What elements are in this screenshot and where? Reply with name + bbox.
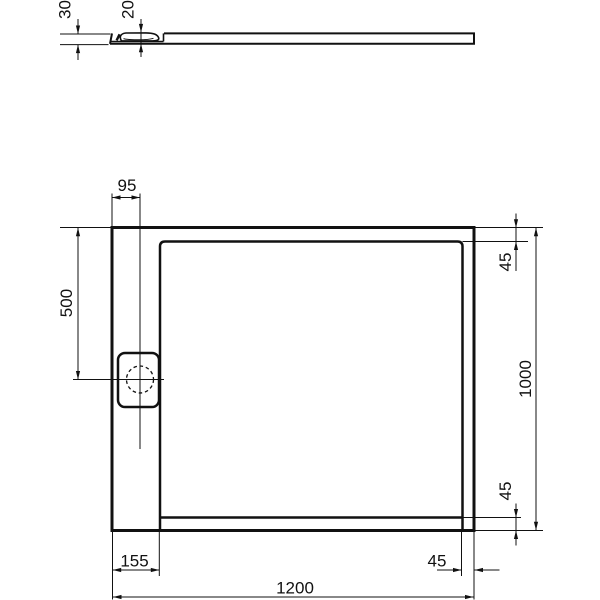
dim-label-depth: 1000	[516, 360, 535, 398]
arrow-up-icon	[534, 228, 538, 237]
plan-inner-floor	[160, 242, 463, 531]
arrow-right-icon	[453, 568, 462, 572]
arrow-down-icon	[139, 24, 143, 33]
dim-bottom-edge-band: 45	[463, 482, 522, 546]
arrow-up-icon	[76, 45, 80, 54]
arrow-down-icon	[534, 522, 538, 531]
dim-label-bottom-edge-band: 45	[496, 482, 515, 501]
dim-label-drain-cover-height: 20	[119, 0, 138, 19]
dim-drain-from-left: 95	[112, 176, 140, 227]
dim-right-edge-band: 45	[428, 531, 500, 600]
arrow-right-icon	[132, 195, 141, 199]
arrow-right-icon	[151, 568, 160, 572]
arrow-left-icon	[112, 195, 121, 199]
drawing-canvas: 30 20 95	[0, 0, 600, 600]
arrow-up-icon	[514, 531, 518, 540]
arrow-up-icon	[139, 44, 143, 53]
technical-drawing-shower-tray: 30 20 95	[0, 0, 600, 600]
side-view-tray-outline	[110, 33, 474, 43]
dim-label-width: 1200	[276, 579, 314, 598]
side-view-waste-lip	[117, 34, 120, 40]
arrow-down-icon	[76, 371, 80, 380]
arrow-down-icon	[76, 26, 80, 35]
dim-label-left-drain-band: 155	[120, 552, 148, 571]
arrow-up-icon	[514, 242, 518, 251]
dim-label-drain-from-left: 95	[118, 176, 137, 195]
dim-overall-height: 30	[56, 0, 111, 60]
dim-width: 1200	[113, 579, 474, 600]
dim-label-top-edge-band: 45	[496, 253, 515, 272]
plan-outer-rim	[112, 228, 474, 531]
plan-view: 95 500 45 1000	[57, 176, 543, 600]
dim-label-right-edge-band: 45	[428, 552, 447, 571]
arrow-right-icon	[465, 595, 474, 599]
side-view: 30 20	[56, 0, 475, 60]
dim-drain-from-top: 500	[57, 228, 112, 380]
arrow-left-icon	[475, 568, 484, 572]
dim-label-drain-from-top: 500	[57, 289, 76, 317]
dim-label-overall-height: 30	[56, 0, 75, 19]
arrow-down-icon	[514, 219, 518, 228]
dim-drain-cover-height: 20	[119, 0, 144, 57]
arrow-up-icon	[76, 228, 80, 237]
arrow-down-icon	[514, 509, 518, 518]
arrow-left-icon	[113, 595, 122, 599]
dim-left-drain-band: 155	[113, 531, 160, 600]
